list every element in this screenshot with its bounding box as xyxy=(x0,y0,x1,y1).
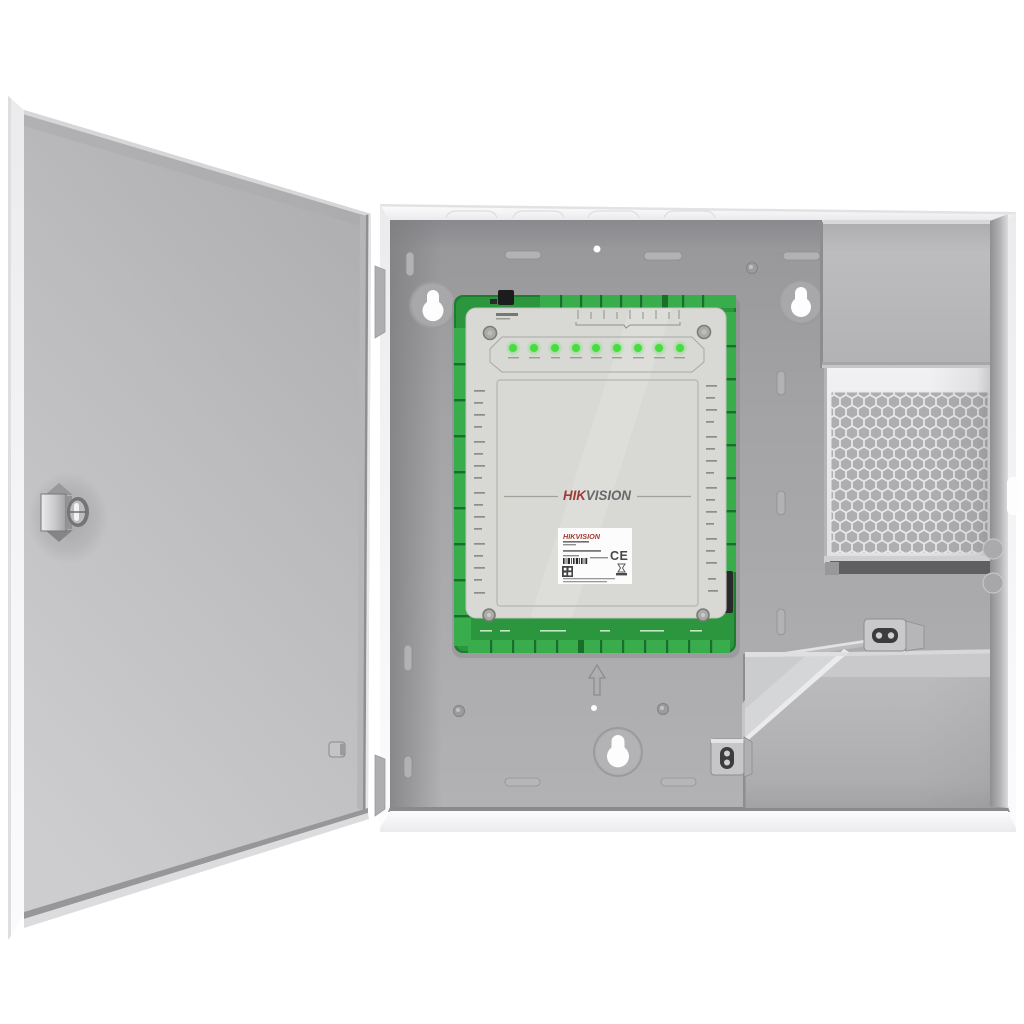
svg-text:CE: CE xyxy=(610,549,628,563)
svg-text:HIKVISION: HIKVISION xyxy=(563,488,631,503)
svg-text:HIKVISION: HIKVISION xyxy=(563,534,601,541)
